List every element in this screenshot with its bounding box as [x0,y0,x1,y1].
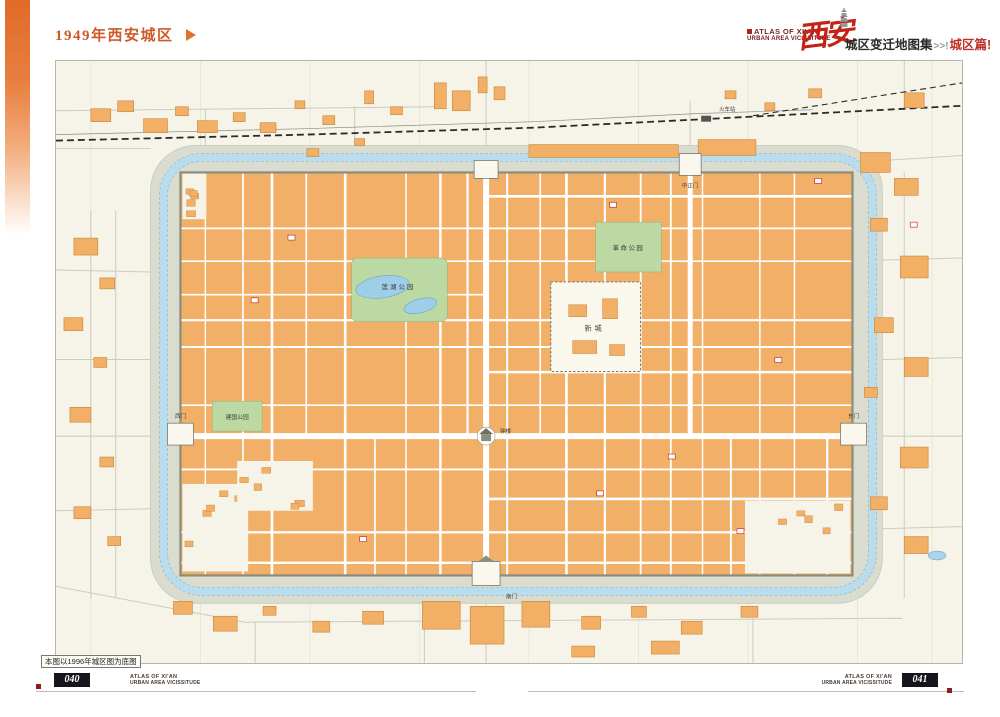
page-title: 1949年西安城区 [55,24,196,45]
footer-wordmark-left: ATLAS OF XI'AN URBAN AREA VICISSITUDE [130,674,200,686]
series-separator: >>! [934,41,949,52]
footer-rule-left [36,691,476,692]
header-logo: ATLAS OF XI'AN URBAN AREA VICISSITUDE 西安… [745,12,967,56]
lianhu-park: 莲湖公园 [352,258,448,322]
footer-square-icon-left [36,684,41,689]
walled-city [180,172,852,575]
lianhu-park-label: 莲湖公园 [382,282,416,291]
zhongzheng-gate-label: 中正门 [682,181,698,189]
page-number-right: 041 [902,673,938,687]
east-gate [841,423,867,445]
footer-rule-right [528,691,964,692]
jianguo-park-label: 建国公园 [226,413,249,421]
pond [928,551,946,560]
railway-station-label: 火车站 [719,105,736,113]
footer-left-line2: URBAN AREA VICISSITUDE [130,680,200,686]
page-title-text: 1949年西安城区 [55,28,174,44]
footer-wordmark-right: ATLAS OF XI'AN URBAN AREA VICISSITUDE [822,674,892,686]
south-gate-label: 南门 [506,592,517,600]
title-arrow-icon [186,29,196,41]
station-icon [701,116,711,122]
north-gate [474,161,498,179]
left-accent-bar [5,0,30,235]
pagoda-icon [837,8,851,28]
footer-square-icon-right [947,688,952,693]
revolution-park-label: 革命公园 [613,243,645,252]
logo-square-icon [747,29,752,34]
page-number-left: 040 [54,673,90,687]
series-section: 城区篇! [950,38,992,52]
footer-right: 041 ATLAS OF XI'AN URBAN AREA VICISSITUD… [528,672,964,698]
bell-tower-label: 钟楼 [500,427,511,435]
basemap-note: 本图以1996年城区图为底图 [41,655,141,668]
xincheng-label: 新城 [585,324,605,333]
west-gate-label: 西门 [175,412,186,420]
footer-left: 040 ATLAS OF XI'AN URBAN AREA VICISSITUD… [36,672,476,698]
east-gate-label: 东门 [848,412,859,420]
series-title: 城区变迁地图集 [845,38,933,52]
bell-tower-icon [481,434,491,441]
jianguo-park: 建国公园 [212,401,262,431]
revolution-park: 革命公园 [596,222,662,272]
xian-1949-map: 革命公园 莲湖公园 建国公园 新城 [56,61,962,663]
atlas-page: 1949年西安城区 ATLAS OF XI'AN URBAN AREA VICI… [0,0,1000,717]
south-gate [472,562,500,586]
series-title-line: 城区变迁地图集>>!城区篇! [845,34,991,53]
footer-right-line2: URBAN AREA VICISSITUDE [822,680,892,686]
west-gate [168,423,194,445]
map-frame: 革命公园 莲湖公园 建国公园 新城 [55,60,963,664]
zhongzheng-gate [679,154,701,176]
xincheng-compound: 新城 [551,282,641,372]
